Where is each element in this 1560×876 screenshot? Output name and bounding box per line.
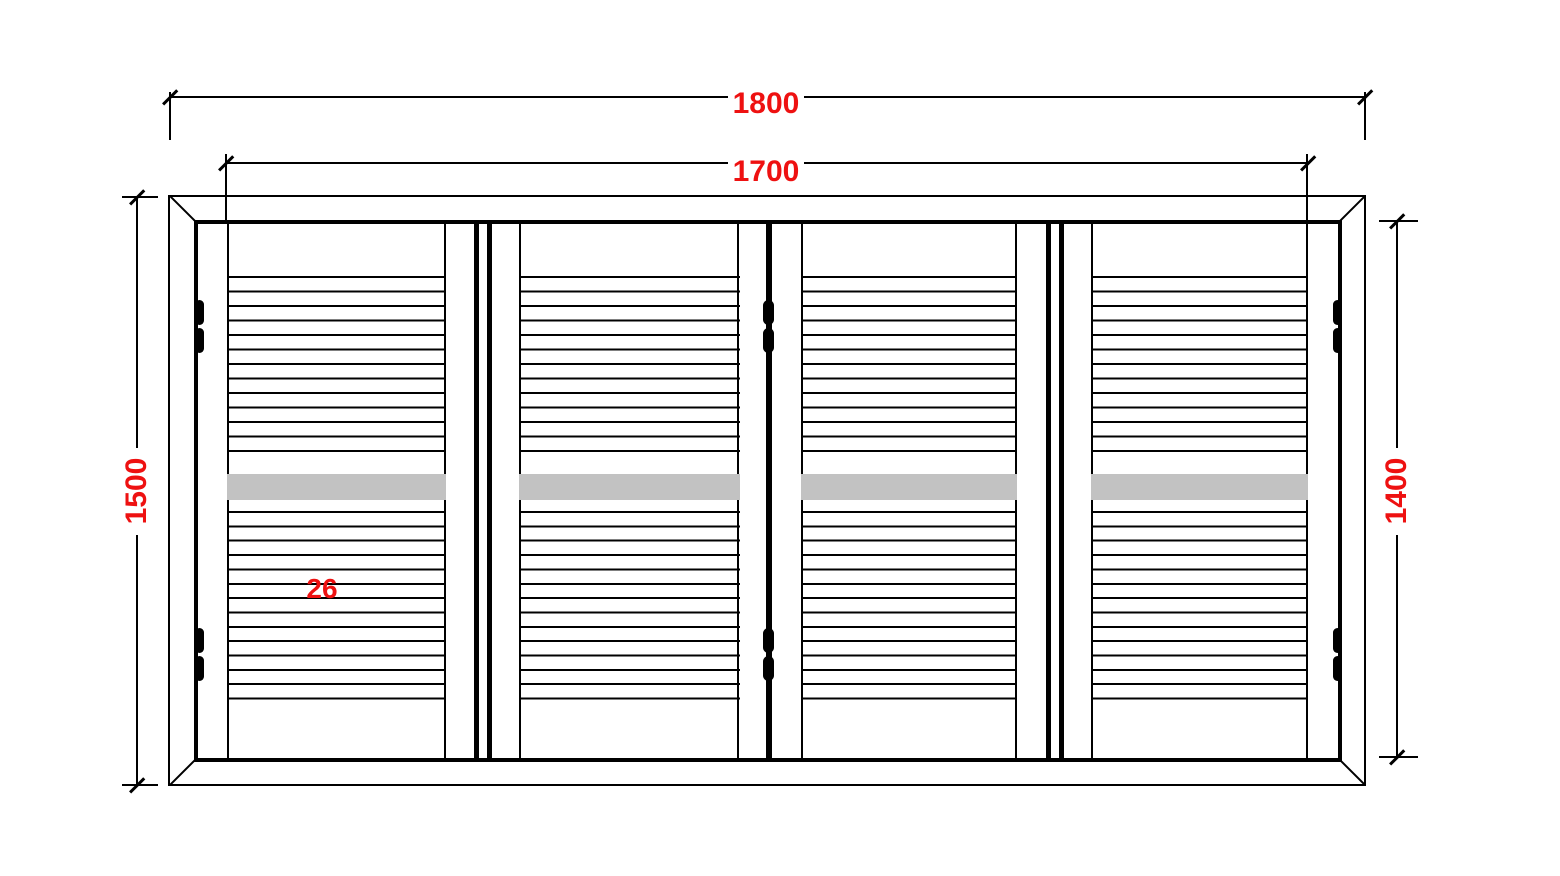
dim-1500-extension-top xyxy=(122,196,158,198)
dim-1400-line-top xyxy=(1396,221,1398,448)
mid-rail-highlight xyxy=(519,474,740,500)
louver-slats-upper xyxy=(801,276,1017,452)
dim-label-overall-width: 1800 xyxy=(726,89,806,119)
dim-1700-line-right xyxy=(804,162,1308,164)
louver-slats-lower xyxy=(1091,511,1308,700)
mid-rail-highlight xyxy=(801,474,1017,500)
hinge-knuckle xyxy=(195,656,204,681)
panel-edge-line xyxy=(487,224,492,758)
mid-rail-highlight xyxy=(1091,474,1308,500)
hinge-knuckle xyxy=(195,300,204,325)
hinge-knuckle xyxy=(1333,328,1342,353)
hinge-knuckle xyxy=(1333,628,1342,653)
hinge-knuckle xyxy=(763,328,774,353)
dim-1800-line-right xyxy=(804,96,1365,98)
shutter-elevation-drawing: 1800 1700 1500 1400 26 xyxy=(0,0,1560,876)
panel-edge-line xyxy=(474,224,479,758)
dim-1500-line-top xyxy=(136,197,138,448)
hinge-knuckle xyxy=(1333,300,1342,325)
louver-slats-lower xyxy=(227,511,446,700)
hinge-knuckle xyxy=(763,656,774,681)
dim-label-overall-height: 1500 xyxy=(122,431,152,551)
panel-edge-line xyxy=(1059,224,1064,758)
hinge-knuckle xyxy=(1333,656,1342,681)
dim-label-opening-height: 1400 xyxy=(1382,431,1412,551)
dim-1700-line-left xyxy=(226,162,728,164)
louver-slats-upper xyxy=(227,276,446,452)
louver-slats-upper xyxy=(1091,276,1308,452)
hinge-knuckle xyxy=(195,628,204,653)
louver-slats-upper xyxy=(519,276,740,452)
dim-1500-line-bottom xyxy=(136,535,138,785)
mid-rail-highlight xyxy=(227,474,446,500)
hinge-knuckle xyxy=(763,628,774,653)
dim-1400-line-bottom xyxy=(1396,535,1398,758)
dim-label-slat-size: 26 xyxy=(297,574,347,604)
panel-edge-line xyxy=(1046,224,1051,758)
hinge-knuckle xyxy=(195,328,204,353)
dim-label-opening-width: 1700 xyxy=(726,157,806,187)
louver-slats-lower xyxy=(801,511,1017,700)
dim-1500-extension-bottom xyxy=(122,784,158,786)
hinge-knuckle xyxy=(763,300,774,325)
louver-slats-lower xyxy=(519,511,740,700)
dim-1800-line-left xyxy=(170,96,728,98)
